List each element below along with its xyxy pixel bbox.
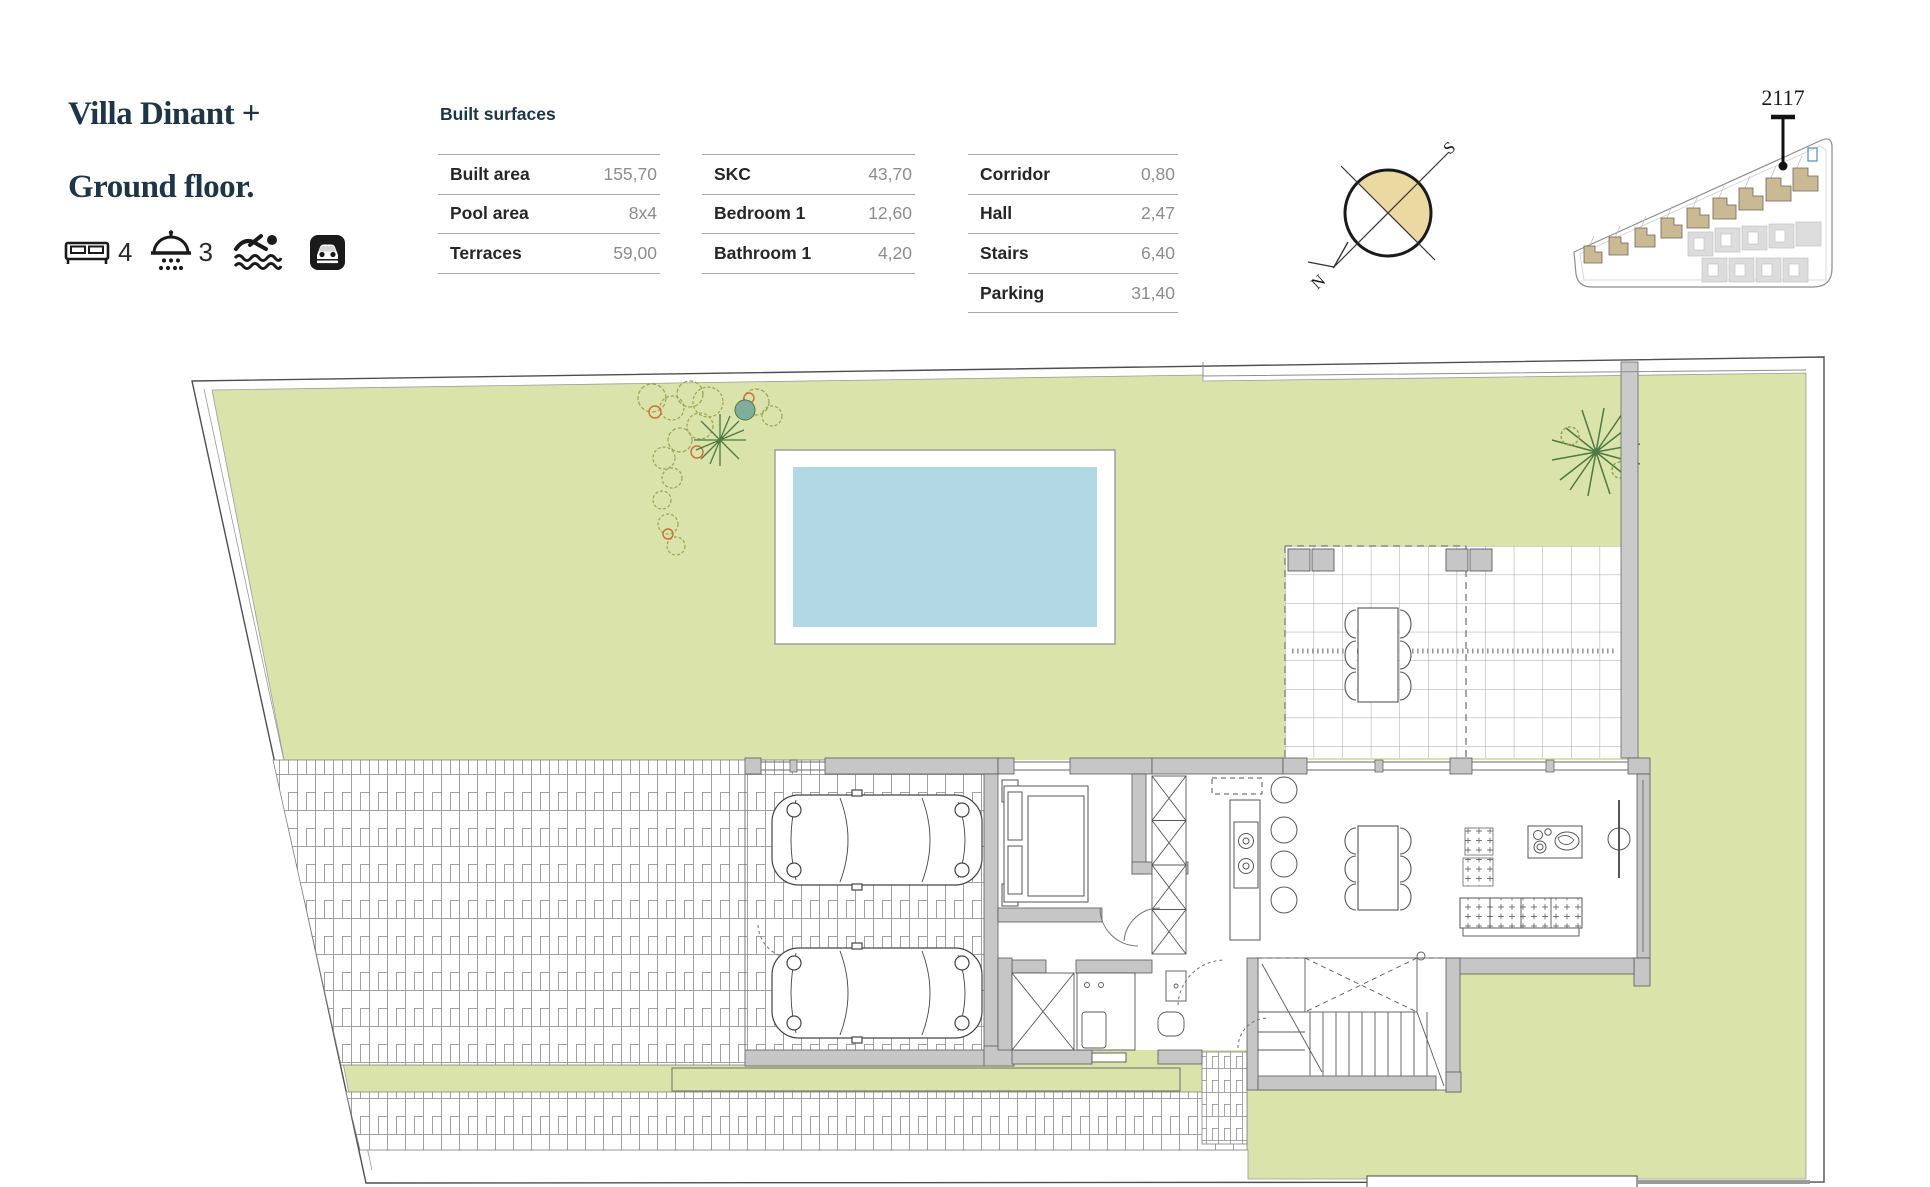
- surface-label: Pool area: [450, 203, 529, 224]
- surfaces-table-2: SKC43,70 Bedroom 112,60 Bathroom 14,20: [702, 154, 915, 274]
- surface-label: SKC: [714, 164, 751, 185]
- surface-row: Hall2,47: [968, 195, 1178, 235]
- floorplan-page: { "header": { "title_line1": "Villa Dina…: [0, 0, 1930, 1187]
- villa-title: Villa Dinant +: [68, 96, 260, 133]
- bed-icon: [64, 232, 112, 272]
- car-1: [772, 790, 982, 890]
- surface-row: Built area155,70: [438, 155, 660, 195]
- walkway-paving: [346, 1092, 1247, 1150]
- surface-value: 8x4: [629, 203, 657, 224]
- surface-value: 4,20: [878, 243, 912, 264]
- compass-rose: S N: [1307, 138, 1459, 293]
- surface-value: 43,70: [868, 164, 912, 185]
- dining-table: [1345, 826, 1411, 910]
- wardrobe: [1152, 776, 1186, 954]
- entry-path: [1202, 1052, 1247, 1144]
- car-2: [772, 943, 982, 1043]
- site-plan: 2117: [1574, 85, 1832, 287]
- swimmer-icon: [233, 232, 283, 272]
- surface-value: 0,80: [1141, 164, 1175, 185]
- surface-row: Stairs6,40: [968, 234, 1178, 274]
- surface-label: Parking: [980, 283, 1044, 304]
- unit-label: 2117: [1761, 85, 1804, 110]
- surface-value: 6,40: [1141, 243, 1175, 264]
- surface-row: Parking31,40: [968, 274, 1178, 314]
- surface-row: Bedroom 112,60: [702, 195, 915, 235]
- parking-icon: [309, 234, 346, 271]
- surface-label: Hall: [980, 203, 1012, 224]
- surface-label: Corridor: [980, 164, 1050, 185]
- surface-row: Bathroom 14,20: [702, 234, 915, 274]
- planter-strip: [672, 1068, 1180, 1091]
- surfaces-table-3: Corridor0,80 Hall2,47 Stairs6,40 Parking…: [968, 154, 1178, 313]
- terrace: [1285, 546, 1628, 758]
- surface-row: Pool area8x4: [438, 195, 660, 235]
- pool: [775, 450, 1115, 644]
- bed: [1002, 780, 1088, 906]
- pool-water: [793, 467, 1097, 627]
- surface-row: SKC43,70: [702, 155, 915, 195]
- surfaces-heading: Built surfaces: [440, 104, 556, 125]
- surface-value: 59,00: [613, 243, 657, 264]
- amenity-icons: 4 3: [64, 230, 346, 274]
- surface-label: Bedroom 1: [714, 203, 805, 224]
- compass-north-label: N: [1307, 271, 1329, 293]
- surface-label: Bathroom 1: [714, 243, 811, 264]
- surface-row: Terraces59,00: [438, 234, 660, 274]
- surface-label: Terraces: [450, 243, 522, 264]
- surface-label: Built area: [450, 164, 530, 185]
- surface-value: 2,47: [1141, 203, 1175, 224]
- bathroom-count: 3: [198, 237, 212, 268]
- surface-row: Corridor0,80: [968, 155, 1178, 195]
- surfaces-table-1: Built area155,70 Pool area8x4 Terraces59…: [438, 154, 660, 274]
- surface-value: 12,60: [868, 203, 912, 224]
- pergola-wall: [1621, 362, 1638, 758]
- surface-value: 155,70: [603, 164, 657, 185]
- shower-icon: [150, 230, 192, 274]
- floor-subtitle: Ground floor.: [68, 169, 254, 206]
- surface-label: Stairs: [980, 243, 1029, 264]
- compass-south-label: S: [1439, 138, 1459, 158]
- bedroom-count: 4: [118, 237, 132, 268]
- sofa: [1460, 898, 1582, 936]
- floor-plan-drawing: S N 2117: [0, 0, 1930, 1187]
- terrace-table: [1345, 608, 1411, 702]
- surface-value: 31,40: [1131, 283, 1175, 304]
